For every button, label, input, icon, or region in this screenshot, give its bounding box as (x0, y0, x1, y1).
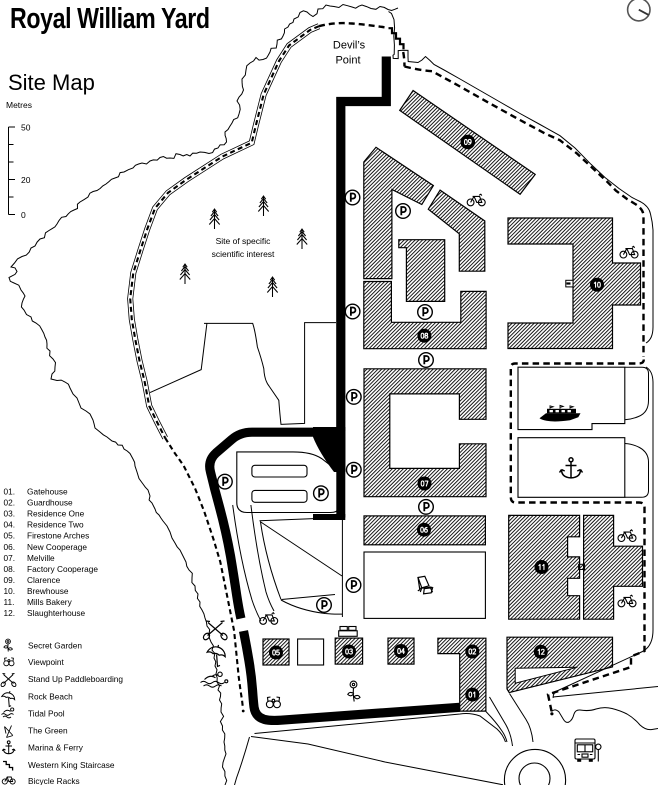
svg-text:05.: 05. (4, 531, 16, 541)
svg-text:Rock Beach: Rock Beach (28, 691, 73, 701)
svg-text:10.: 10. (4, 586, 16, 596)
svg-text:0: 0 (21, 210, 26, 220)
svg-text:Residence Two: Residence Two (27, 520, 84, 530)
svg-text:Stand Up Paddleboarding: Stand Up Paddleboarding (28, 674, 123, 684)
svg-text:Slaughterhouse: Slaughterhouse (27, 608, 86, 618)
svg-text:Marina & Ferry: Marina & Ferry (28, 743, 84, 753)
svg-text:Point: Point (335, 55, 360, 67)
svg-text:Site of specific: Site of specific (216, 236, 272, 246)
svg-text:Firestone Arches: Firestone Arches (27, 531, 89, 541)
svg-text:New Cooperage: New Cooperage (27, 542, 87, 552)
svg-text:scientific interest: scientific interest (212, 249, 275, 259)
svg-text:Site Map: Site Map (8, 70, 95, 95)
svg-text:Royal William Yard: Royal William Yard (10, 1, 210, 34)
svg-text:Bicycle Racks: Bicycle Racks (28, 776, 80, 785)
svg-text:Viewpoint: Viewpoint (28, 657, 65, 667)
svg-text:Factory Cooperage: Factory Cooperage (27, 564, 98, 574)
svg-text:06.: 06. (4, 542, 16, 552)
svg-text:09.: 09. (4, 575, 16, 585)
svg-text:Western King Staircase: Western King Staircase (28, 760, 115, 770)
svg-text:11.: 11. (4, 597, 15, 607)
svg-text:Gatehouse: Gatehouse (27, 486, 68, 496)
svg-text:Tidal Pool: Tidal Pool (28, 709, 65, 719)
svg-text:Metres: Metres (6, 100, 32, 110)
svg-text:Secret Garden: Secret Garden (28, 640, 82, 650)
svg-text:03.: 03. (4, 509, 16, 519)
svg-text:Guardhouse: Guardhouse (27, 498, 73, 508)
svg-text:Clarence: Clarence (27, 575, 61, 585)
svg-text:04.: 04. (4, 520, 16, 530)
svg-text:Melville: Melville (27, 553, 55, 563)
svg-text:12.: 12. (4, 608, 16, 618)
svg-text:50: 50 (21, 123, 31, 133)
svg-text:Devil’s: Devil’s (333, 40, 366, 52)
svg-text:The Green: The Green (28, 726, 68, 736)
svg-text:20: 20 (21, 175, 31, 185)
svg-text:Residence One: Residence One (27, 509, 85, 519)
svg-text:08.: 08. (4, 564, 16, 574)
svg-text:02.: 02. (4, 498, 16, 508)
svg-text:01.: 01. (4, 486, 16, 496)
svg-text:07.: 07. (4, 553, 16, 563)
svg-text:Mills Bakery: Mills Bakery (27, 597, 73, 607)
svg-text:Brewhouse: Brewhouse (27, 586, 69, 596)
